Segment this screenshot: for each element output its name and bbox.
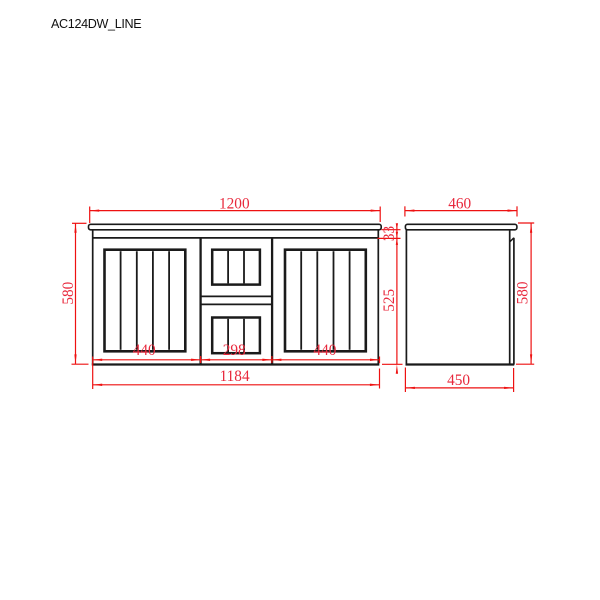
svg-text:580: 580	[514, 281, 531, 304]
svg-text:AC124DW_LINE: AC124DW_LINE	[51, 17, 141, 31]
svg-text:1184: 1184	[220, 368, 250, 385]
svg-text:440: 440	[133, 342, 156, 359]
svg-text:525: 525	[381, 288, 398, 311]
svg-text:450: 450	[447, 372, 470, 389]
svg-text:33: 33	[381, 226, 398, 242]
svg-text:460: 460	[448, 195, 471, 212]
svg-text:440: 440	[313, 342, 336, 359]
svg-text:298: 298	[223, 342, 246, 359]
svg-text:580: 580	[60, 281, 77, 304]
svg-text:1200: 1200	[219, 195, 250, 212]
